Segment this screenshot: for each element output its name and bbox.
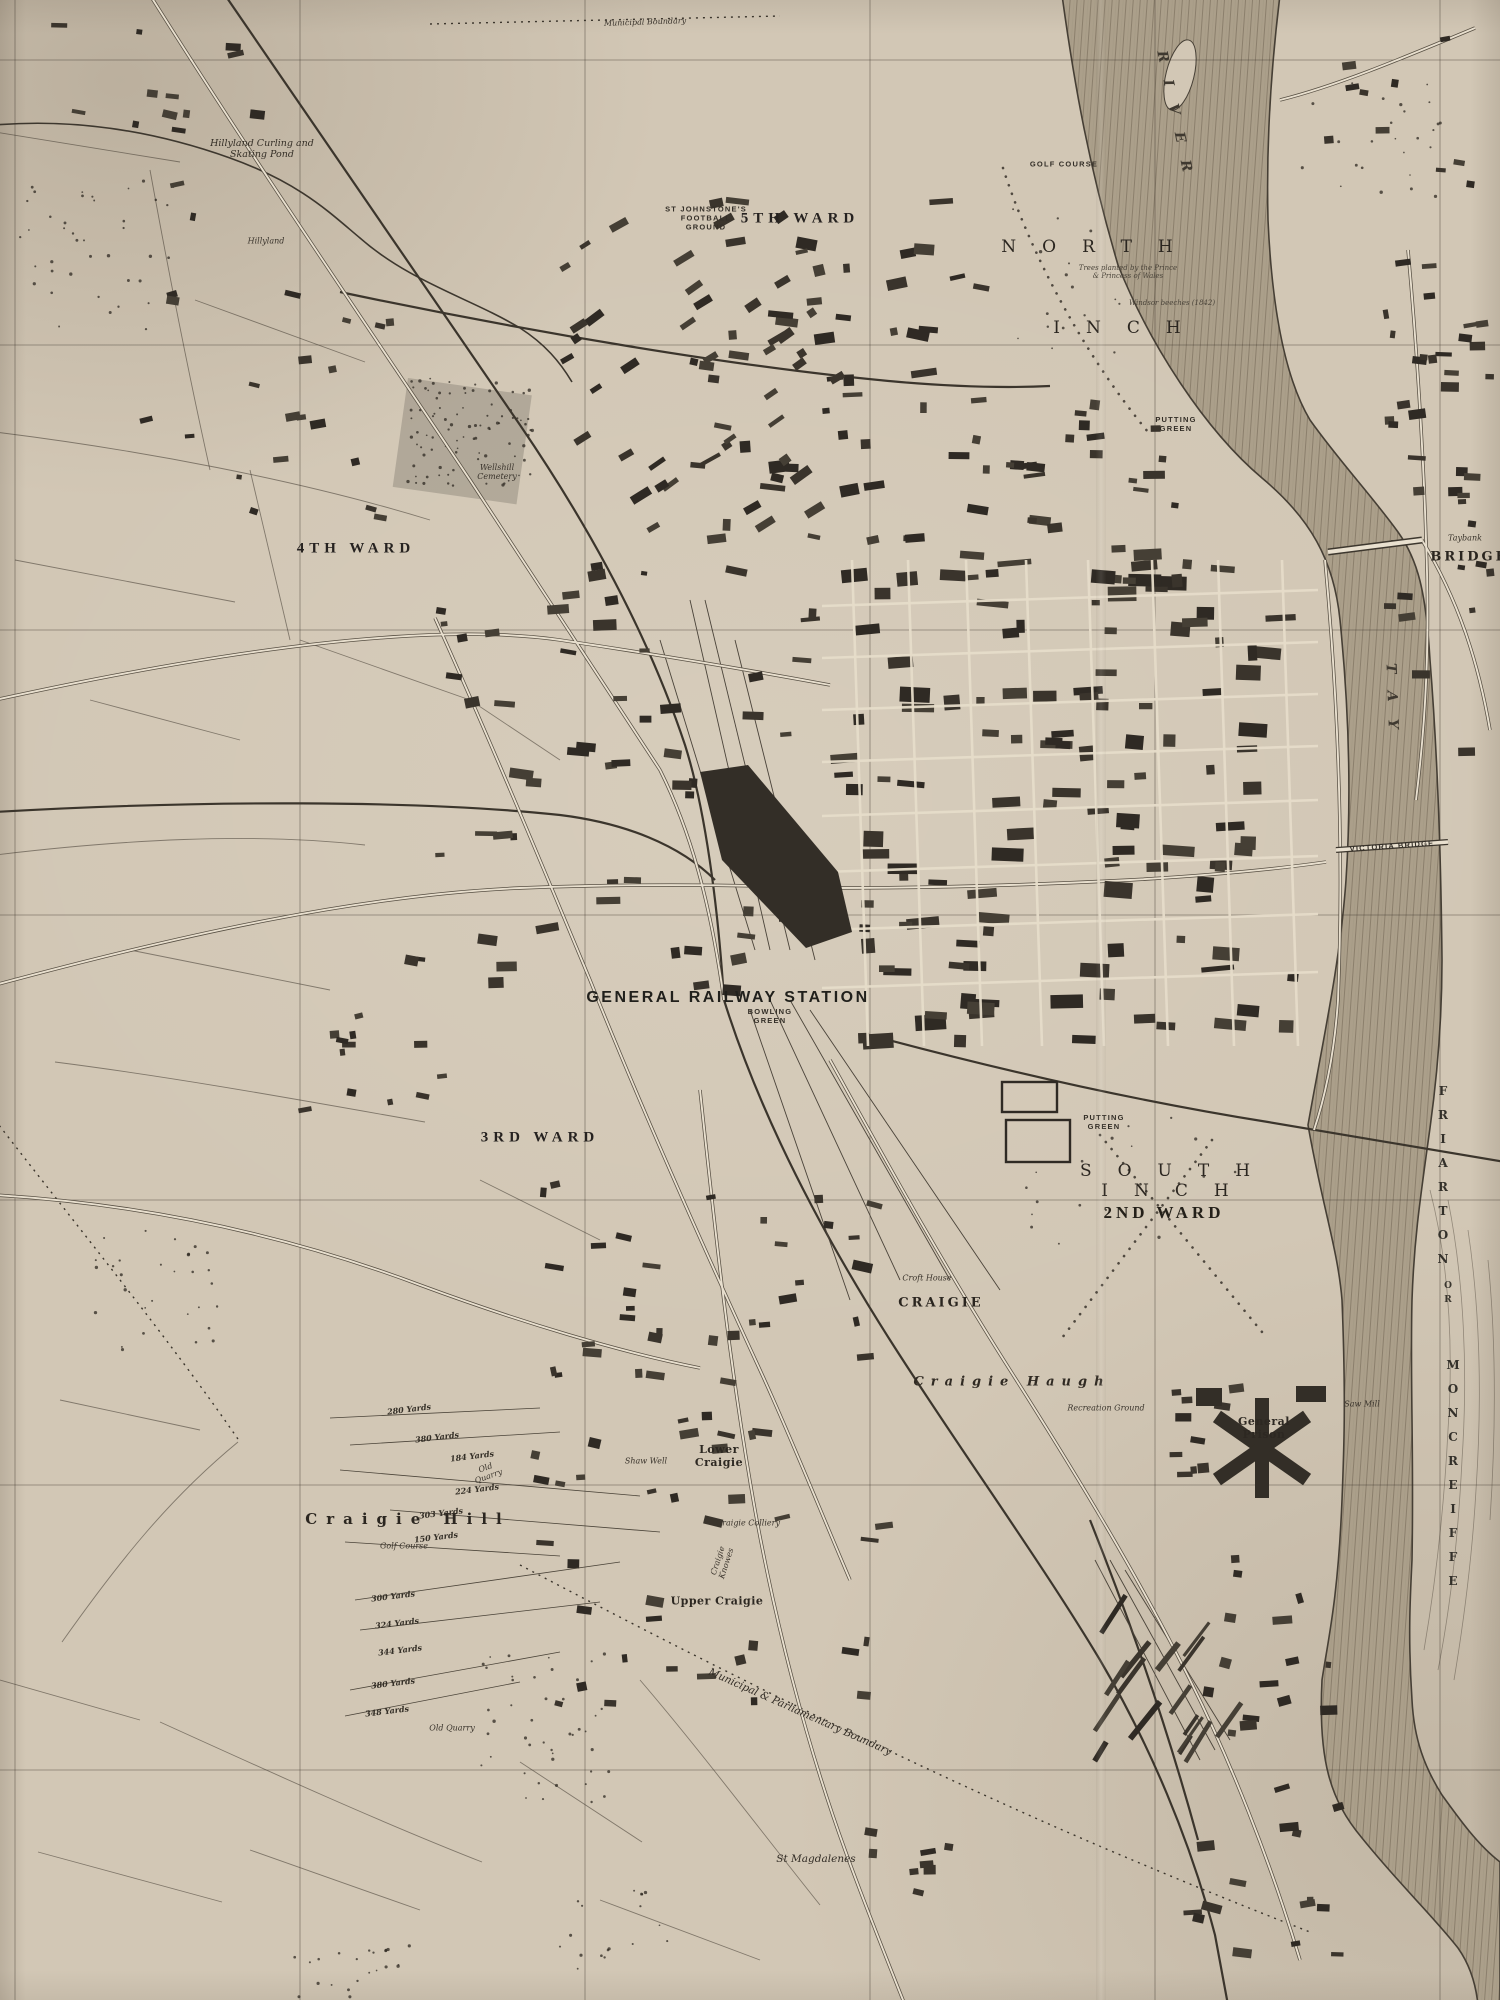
map-label-saw-mill: Saw Mill [1344, 1400, 1380, 1409]
map-label-north-inch-note-2: Windsor beeches (1842) [1129, 299, 1215, 307]
map-label-croft-house: Croft House [902, 1274, 951, 1283]
map-label-hillyland-pond: Hillyland Curling and Skating Pond [210, 138, 314, 160]
map-label-yard-11: 348 Yards [365, 1703, 410, 1718]
map-label-yard-2: 184 Yards [450, 1448, 495, 1463]
map-label-ward-3: 3RD WARD [481, 1130, 599, 1147]
map-label-north-inch-note: Trees planted by the Prince & Princess o… [1079, 264, 1177, 280]
map-label-yard-8: 324 Yards [375, 1615, 420, 1630]
map-label-general-prison: General Prison [1238, 1415, 1290, 1441]
map-label-bridgend: BRIDGEND [1430, 550, 1500, 565]
map-label-yard-1: 380 Yards [415, 1429, 460, 1444]
map-label-lower-craigie: Lower Craigie [695, 1443, 743, 1469]
map-label-upper-craigie: Upper Craigie [671, 1595, 764, 1608]
map-label-ward-5: 5TH WARD [741, 211, 860, 228]
map-label-hillyland: Hillyland [248, 237, 285, 246]
map-label-ward-4: 4TH WARD [297, 541, 416, 558]
map-label-golf-course-north-inch: GOLF COURSE [1030, 160, 1098, 169]
map-label-inch-north: INCH [1053, 318, 1206, 338]
map-label-victoria-bridge: VICTORIA BRIDGE [1349, 839, 1434, 854]
map-label-river: RIVER [1153, 49, 1198, 191]
map-label-craigie-knowes: Craigie Knowes [709, 1544, 736, 1580]
map-label-craigie-hill: Craigie Hill [305, 1510, 510, 1528]
map-label-craigie: CRAIGIE [898, 1296, 983, 1311]
map-label-st-johnstones-football-ground: ST JOHNSTONE'S FOOTBALL GROUND [665, 205, 747, 232]
map-label-craigie-colliery: Craigie Colliery [716, 1519, 780, 1528]
map-label-yard-10: 380 Yards [371, 1675, 416, 1690]
map-label-bowling-green: BOWLING GREEN [748, 1007, 793, 1025]
map-label-st-magdalenes: St Magdalenes [776, 1853, 855, 1865]
map-label-craigie-haugh: Craigie Haugh [913, 1375, 1110, 1390]
map-label-old-quarry-1: Old Quarry [470, 1459, 503, 1486]
map-label-municipal-boundary-top: Municipal Boundary [604, 16, 687, 28]
map-label-tay: TAY [1383, 663, 1402, 747]
map-label-shaw-well: Shaw Well [625, 1457, 667, 1466]
map-label-recreation-ground: Recreation Ground [1067, 1404, 1144, 1413]
map-label-yard-3: 224 Yards [455, 1481, 500, 1496]
map-label-general-railway-station: GENERAL RAILWAY STATION [586, 989, 869, 1007]
map-label-yard-6: 280 Yards [387, 1401, 432, 1416]
map-label-yard-9: 344 Yards [378, 1642, 423, 1657]
map-label-putting-green-south: PUTTING GREEN [1083, 1113, 1124, 1131]
map-label-wellshill-cemetery: Wellshill Cemetery [477, 463, 516, 481]
map-label-old-quarry-2: Old Quarry [429, 1724, 474, 1733]
map-label-friarton: FRIARTON [1436, 1084, 1450, 1276]
map-label-yard-5: 150 Yards [414, 1529, 459, 1544]
map-label-north: NORTH [1001, 237, 1198, 257]
map-label-putting-green-north: PUTTING GREEN [1155, 415, 1196, 433]
map-labels-layer: 5TH WARDST JOHNSTONE'S FOOTBALL GROUNDNO… [0, 0, 1500, 2000]
map-label-yard-4: 303 Yards [419, 1505, 464, 1520]
map-label-yard-7: 300 Yards [371, 1588, 416, 1603]
map-label-or: OR [1443, 1281, 1453, 1309]
map-label-moncreiffe: MONCREIFFE [1446, 1358, 1460, 1598]
map-label-ward-2: 2ND WARD [1104, 1203, 1225, 1223]
map-canvas: 5TH WARDST JOHNSTONE'S FOOTBALL GROUNDNO… [0, 0, 1500, 2000]
map-label-municipal-parliamentary-boundary: Municipal & Parliamentary Boundary [707, 1666, 894, 1758]
map-label-taybank: Taybank [1448, 534, 1482, 543]
map-label-south-inch: SOUTH INCH [1017, 1161, 1339, 1201]
map-label-golf-course-craigie: Golf Course [380, 1542, 428, 1551]
